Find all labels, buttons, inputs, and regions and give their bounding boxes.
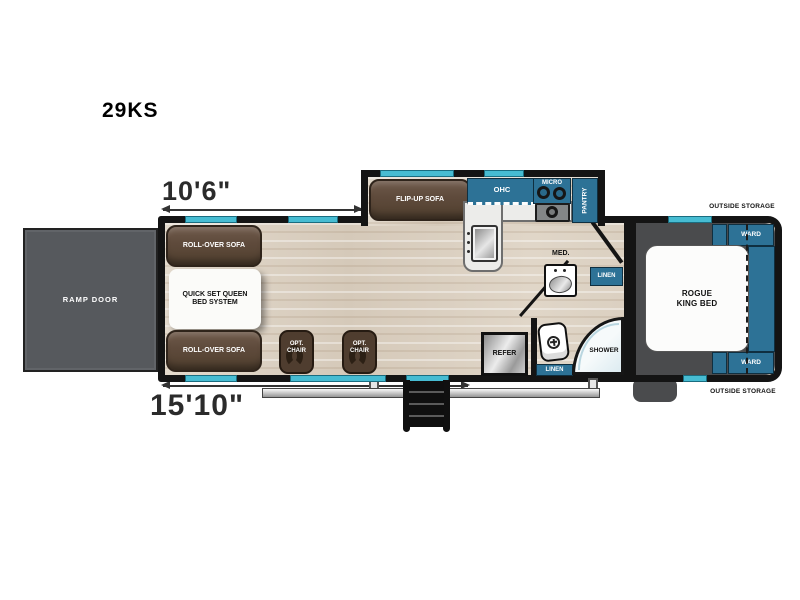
linen-lower-label: LINEN xyxy=(546,367,564,374)
linen-cabinet-lower: LINEN xyxy=(536,364,573,376)
refrigerator: REFER xyxy=(481,332,528,376)
sink-knob-icon xyxy=(467,250,470,253)
dimension-garage-length-label: 15'10" xyxy=(150,389,244,423)
ohc-label: OHC xyxy=(494,186,511,194)
wardrobe-bottom: WARD xyxy=(728,352,774,374)
ward-bottom-filler xyxy=(712,352,727,374)
queen-bed-system-label: QUICK SET QUEEN BED SYSTEM xyxy=(183,291,248,307)
ramp-door-label: RAMP DOOR xyxy=(63,296,119,304)
step-treads-icon xyxy=(409,381,444,427)
bath-vanity-sink xyxy=(544,264,577,297)
flip-up-sofa-label: FLIP-UP SOFA xyxy=(396,196,444,204)
roll-over-sofa-top-label: ROLL-OVER SOFA xyxy=(183,242,245,250)
opt-chair-2-label: OPT. CHAIR xyxy=(344,341,375,354)
med-cabinet-label: MED. xyxy=(552,250,570,258)
roll-over-sofa-top: ROLL-OVER SOFA xyxy=(166,225,262,267)
toilet-flush-icon xyxy=(546,335,560,349)
sink-knob-icon xyxy=(467,241,470,244)
refer-label: REFER xyxy=(493,350,517,358)
window-marker xyxy=(185,375,237,382)
faucet-dot-icon xyxy=(563,269,566,272)
stove-burner-icon xyxy=(537,186,550,199)
pantry-label: PANTRY xyxy=(581,187,588,213)
opt-chair-1-label: OPT. CHAIR xyxy=(281,341,312,354)
queen-bed-system: QUICK SET QUEEN BED SYSTEM xyxy=(169,269,261,329)
floorplan-canvas: 29KS 10'6" 15'10" RAMP DOOR ROLL-OVER SO… xyxy=(0,0,800,600)
opt-chair-1: OPT. CHAIR xyxy=(279,330,314,374)
dimension-garage-width-arrow xyxy=(163,209,361,211)
model-label: 29KS xyxy=(102,99,159,123)
window-marker xyxy=(668,216,712,223)
sink-knob-icon xyxy=(467,232,470,235)
linen-cabinet-upper: LINEN xyxy=(590,267,623,286)
pantry-cabinet: PANTRY xyxy=(572,178,598,223)
window-marker xyxy=(185,216,237,223)
dimension-garage-width-label: 10'6" xyxy=(162,176,231,207)
faucet-dot-icon xyxy=(554,269,557,272)
opt-chair-2: OPT. CHAIR xyxy=(342,330,377,374)
kitchen-sink-icon xyxy=(471,225,498,262)
window-marker xyxy=(683,375,707,382)
window-marker xyxy=(484,170,524,177)
stove-burner-icon xyxy=(553,187,566,200)
ward-bottom-label: WARD xyxy=(741,359,761,366)
ward-top-filler xyxy=(712,224,727,246)
wardrobe-top: WARD xyxy=(728,224,774,246)
flip-up-sofa: FLIP-UP SOFA xyxy=(369,179,471,221)
window-marker xyxy=(290,375,386,382)
stove-burner-icon xyxy=(546,206,558,218)
king-bed-label: ROGUE KING BED xyxy=(677,289,718,307)
roll-over-sofa-bottom: ROLL-OVER SOFA xyxy=(166,330,262,372)
ohc-cabinet: OHC xyxy=(467,178,537,205)
window-marker xyxy=(288,216,338,223)
window-marker xyxy=(380,170,454,177)
linen-upper-label: LINEN xyxy=(598,273,616,280)
ward-top-label: WARD xyxy=(741,231,761,238)
toilet xyxy=(537,321,570,362)
shower-label: SHOWER xyxy=(583,347,625,354)
step-rail-icon xyxy=(443,380,450,432)
outside-storage-bottom-label: OUTSIDE STORAGE xyxy=(708,388,778,395)
vanity-basin-icon xyxy=(548,274,573,294)
bed-platform xyxy=(748,246,775,352)
outside-storage-top-label: OUTSIDE STORAGE xyxy=(705,203,779,210)
king-bed: ROGUE KING BED xyxy=(645,245,749,352)
bed-extension-dashed-line xyxy=(746,224,748,374)
roll-over-sofa-bottom-label: ROLL-OVER SOFA xyxy=(183,347,245,355)
ramp-door: RAMP DOOR xyxy=(23,228,158,372)
entry-steps xyxy=(403,380,450,432)
bedroom-partition-wall xyxy=(624,223,636,375)
